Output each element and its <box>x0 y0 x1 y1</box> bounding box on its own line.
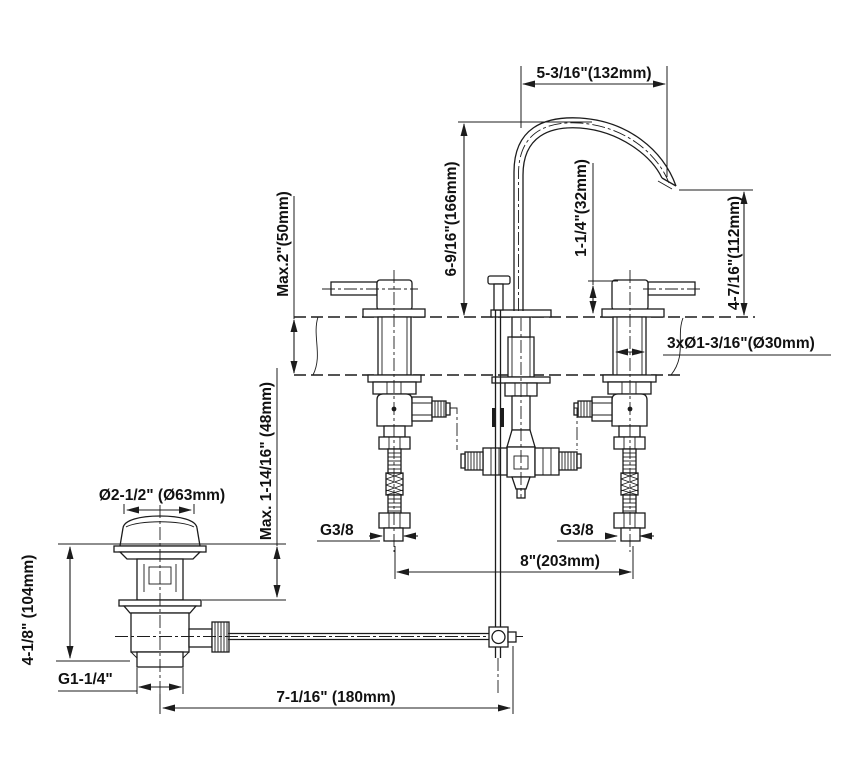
right-hose-end <box>621 528 640 541</box>
right-supply-hose <box>614 426 645 541</box>
outlet-height-label: 4-7/16"(112mm) <box>726 196 743 310</box>
right-valve-assembly <box>574 317 656 426</box>
hole-spacing-label: 8"(203mm) <box>520 553 600 570</box>
drain-thread-label: G1-1/4" <box>58 671 113 688</box>
rod-end-cap <box>508 632 516 642</box>
max-deck-thickness-label: Max.2"(50mm) <box>275 191 292 297</box>
deck-break-line-left <box>313 317 318 375</box>
rod-reach-label: 7-1/16" (180mm) <box>276 689 395 706</box>
right-hose-nut-top <box>614 437 645 449</box>
tee-left-hose-connector <box>461 452 483 470</box>
drain-rod-socket <box>189 629 212 647</box>
left-supply-hose <box>379 426 410 541</box>
lift-rod-knob <box>488 276 510 284</box>
lift-rod-clip <box>492 408 496 427</box>
left-valve-outlet <box>412 397 450 421</box>
drain-flange-diameter-label: Ø2-1/2" (Ø63mm) <box>99 487 225 504</box>
faucet-dimension-drawing: 5-3/16"(132mm) 6-9/16"(166mm) 1-1/4"(32m… <box>0 0 867 784</box>
handle-height-label: 1-1/4"(32mm) <box>573 159 590 257</box>
right-escutcheon <box>602 309 664 317</box>
technical-drawing-canvas: 5-3/16"(132mm) 6-9/16"(166mm) 1-1/4"(32m… <box>0 0 867 784</box>
left-hose-nut-top <box>379 437 410 449</box>
supply-thread-left-label: G3/8 <box>320 522 354 539</box>
right-valve-outlet <box>574 397 612 421</box>
supply-thread-right-label: G3/8 <box>560 522 594 539</box>
right-mounting-nut <box>608 382 651 394</box>
left-hose-nut-bottom <box>379 513 410 528</box>
mounting-holes-label: 3xØ1-3/16"(Ø30mm) <box>667 335 815 352</box>
spout-reach-label: 5-3/16"(132mm) <box>536 65 651 82</box>
left-washer <box>368 375 421 382</box>
left-handle-body <box>377 280 412 310</box>
left-hose-end <box>384 528 403 541</box>
spout-height-label: 6-9/16"(166mm) <box>443 161 460 276</box>
right-hose-nut-bottom <box>614 513 645 528</box>
left-shank <box>378 317 411 375</box>
right-shank <box>613 317 646 375</box>
max-drain-deck-label: Max. 1-14/16" (48mm) <box>258 382 275 540</box>
right-handle-assembly <box>602 280 695 317</box>
right-washer <box>603 375 656 382</box>
left-mounting-nut <box>373 382 416 394</box>
drain-height-label: 4-1/8" (104mm) <box>20 555 37 666</box>
pop-up-rod <box>228 627 516 658</box>
left-handle-lever <box>331 282 377 295</box>
right-handle-lever <box>648 282 695 295</box>
left-handle-assembly <box>331 280 425 317</box>
left-valve-assembly <box>368 317 450 426</box>
tee-right-nut <box>535 448 559 475</box>
clevis-pivot <box>492 631 505 644</box>
pop-up-drain <box>114 516 229 667</box>
tee-right-hose-connector <box>559 452 581 470</box>
